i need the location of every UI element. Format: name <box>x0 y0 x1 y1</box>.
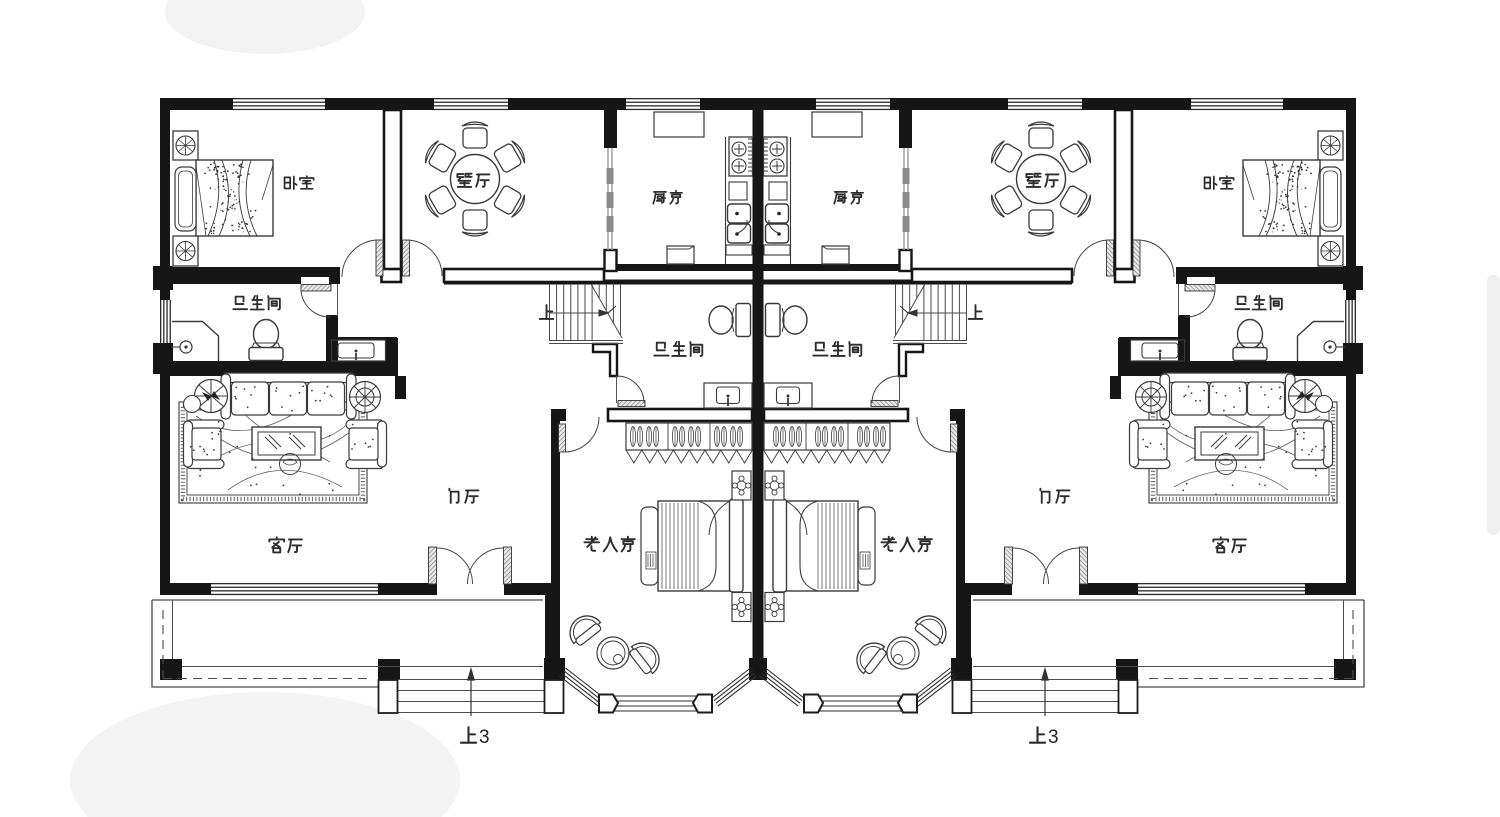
svg-text:3: 3 <box>1048 727 1059 748</box>
svg-text:3: 3 <box>479 727 490 748</box>
